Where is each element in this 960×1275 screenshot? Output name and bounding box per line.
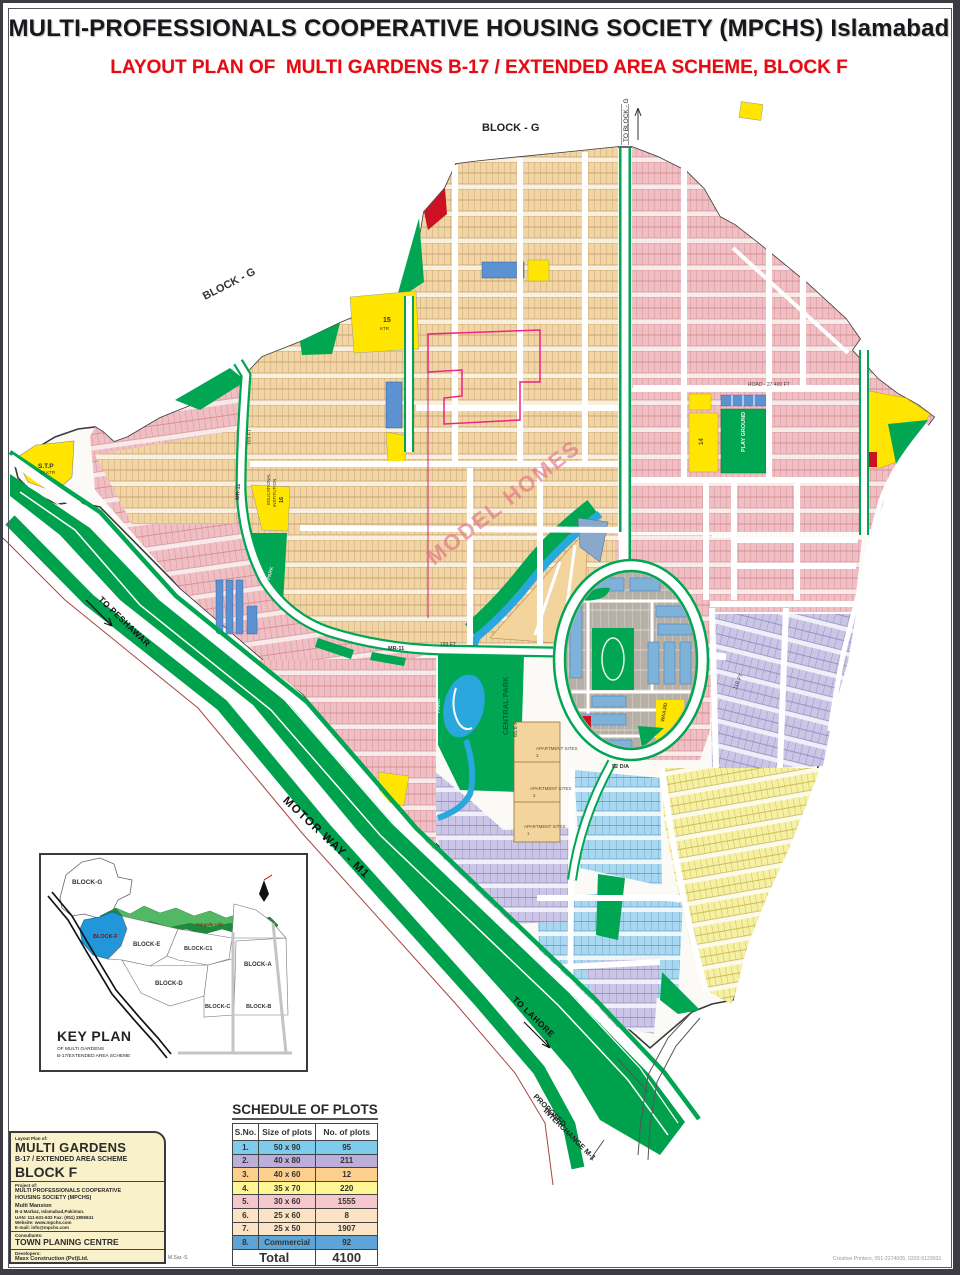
svg-text:BLOCK-E: BLOCK-E [133, 942, 160, 948]
svg-text:PARK: PARK [436, 698, 442, 713]
svg-text:BLOCK-B: BLOCK-B [246, 1004, 271, 1010]
svg-text:52 D/A: 52 D/A [612, 764, 629, 770]
svg-text:15: 15 [383, 317, 391, 324]
svg-text:TO BLOCK - G: TO BLOCK - G [623, 98, 630, 142]
svg-text:EDUCATIONAL: EDUCATIONAL [266, 473, 271, 505]
svg-text:KEY PLAN: KEY PLAN [57, 1028, 132, 1044]
svg-text:KTR: KTR [380, 326, 390, 331]
svg-text:ROAD - 27 400 FT: ROAD - 27 400 FT [748, 382, 790, 388]
svg-text:65.6 K: 65.6 K [513, 721, 519, 737]
svg-text:Margalla Hills: Margalla Hills [196, 922, 224, 927]
svg-text:B-17/EXTENDED AREA SCHEME: B-17/EXTENDED AREA SCHEME [57, 1053, 130, 1059]
svg-text:MR-11: MR-11 [235, 484, 242, 501]
svg-text:INSTITUTION: INSTITUTION [272, 479, 277, 507]
svg-text:OF MULTI GARDENS: OF MULTI GARDENS [57, 1046, 104, 1052]
svg-text:14: 14 [699, 438, 705, 445]
svg-text:MR-11: MR-11 [388, 646, 404, 652]
svg-text:BLOCK - G: BLOCK - G [201, 266, 258, 303]
svg-text:APARTMENT SITES: APARTMENT SITES [524, 824, 566, 829]
svg-text:42 KTR: 42 KTR [40, 470, 56, 475]
svg-text:S.T.P: S.T.P [38, 463, 54, 470]
svg-text:APARTMENT SITES: APARTMENT SITES [536, 746, 578, 751]
svg-text:APARTMENT SITES: APARTMENT SITES [530, 786, 572, 791]
svg-text:BLOCK-A: BLOCK-A [244, 962, 272, 968]
svg-text:BLOCK-C1: BLOCK-C1 [184, 946, 212, 952]
svg-text:193 FT: 193 FT [440, 642, 456, 648]
svg-text:BLOCK-F: BLOCK-F [93, 934, 118, 940]
svg-text:193 FT: 193 FT [246, 429, 253, 445]
svg-text:BLOCK - G: BLOCK - G [482, 122, 539, 134]
svg-text:BLOCK-G: BLOCK-G [72, 879, 102, 886]
svg-text:CENTRAL PARK: CENTRAL PARK [501, 676, 510, 735]
svg-text:BLOCK-D: BLOCK-D [155, 981, 183, 987]
svg-text:16: 16 [279, 497, 285, 503]
svg-text:PLAY GROUND: PLAY GROUND [741, 412, 747, 452]
svg-text:BLOCK-C: BLOCK-C [205, 1004, 230, 1010]
